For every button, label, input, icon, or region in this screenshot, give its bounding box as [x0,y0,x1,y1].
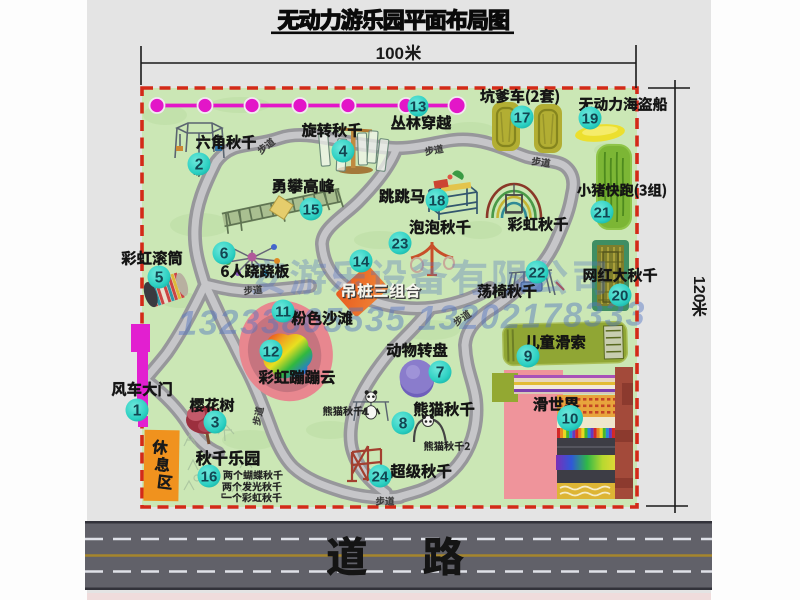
svg-text:7: 7 [436,365,445,382]
svg-text:22: 22 [529,264,546,281]
svg-text:120: 120 [690,276,707,303]
svg-text:15: 15 [303,201,320,218]
svg-text:23: 23 [392,235,409,252]
svg-text:24: 24 [372,468,389,485]
svg-text:20: 20 [612,287,629,304]
svg-text:100: 100 [376,44,404,63]
svg-text:14: 14 [353,253,370,270]
svg-text:3: 3 [211,415,220,432]
svg-text:5: 5 [155,270,164,287]
svg-text:9: 9 [524,349,533,366]
svg-text:10: 10 [562,410,579,427]
svg-text:16: 16 [201,468,218,485]
svg-text:12: 12 [263,343,280,360]
svg-text:1: 1 [133,403,142,420]
svg-text:4: 4 [339,144,348,161]
svg-text:13: 13 [410,98,427,115]
svg-text:21: 21 [594,204,611,221]
svg-text:19: 19 [582,110,599,127]
svg-text:11: 11 [275,303,291,320]
svg-text:17: 17 [514,109,531,126]
svg-text:8: 8 [399,416,408,433]
svg-text:6: 6 [220,246,229,263]
svg-text:2: 2 [195,157,204,174]
svg-text:18: 18 [429,192,446,209]
